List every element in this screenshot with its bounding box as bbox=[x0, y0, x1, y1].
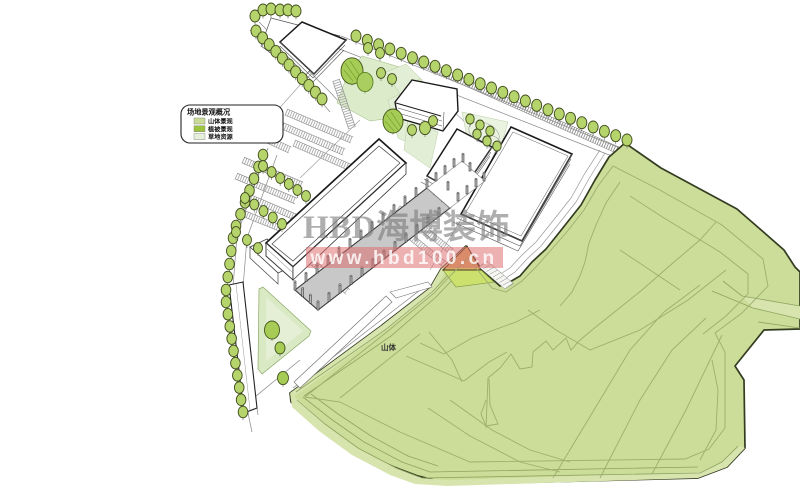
svg-text:HBD海博装饰: HBD海博装饰 bbox=[303, 209, 510, 246]
svg-text:山体: 山体 bbox=[381, 342, 396, 352]
svg-text:草地资源: 草地资源 bbox=[208, 133, 234, 141]
svg-text:场地景观概况: 场地景观概况 bbox=[187, 108, 231, 117]
svg-text:植被景观: 植被景观 bbox=[207, 125, 234, 133]
svg-text:www.hbd100.cn: www.hbd100.cn bbox=[309, 248, 497, 269]
svg-text:山体景观: 山体景观 bbox=[208, 118, 234, 126]
